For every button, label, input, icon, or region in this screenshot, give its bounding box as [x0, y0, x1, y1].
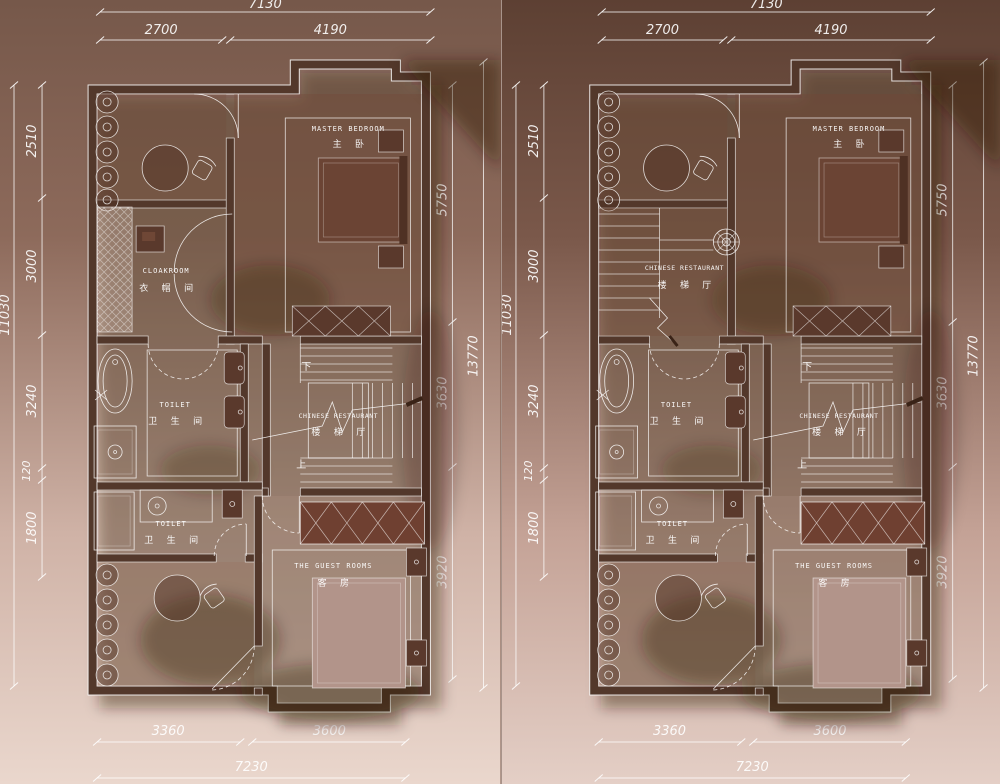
plan-drawing	[88, 60, 500, 725]
floor-plan-right	[502, 0, 1000, 784]
floor-plan-collage	[0, 0, 1000, 784]
plan-drawing	[589, 60, 1000, 725]
floor-plan-panel-right	[501, 0, 1000, 784]
floor-plan-left	[0, 0, 501, 784]
floor-plan-panel-left	[0, 0, 501, 784]
stair-hall-area	[598, 208, 739, 346]
